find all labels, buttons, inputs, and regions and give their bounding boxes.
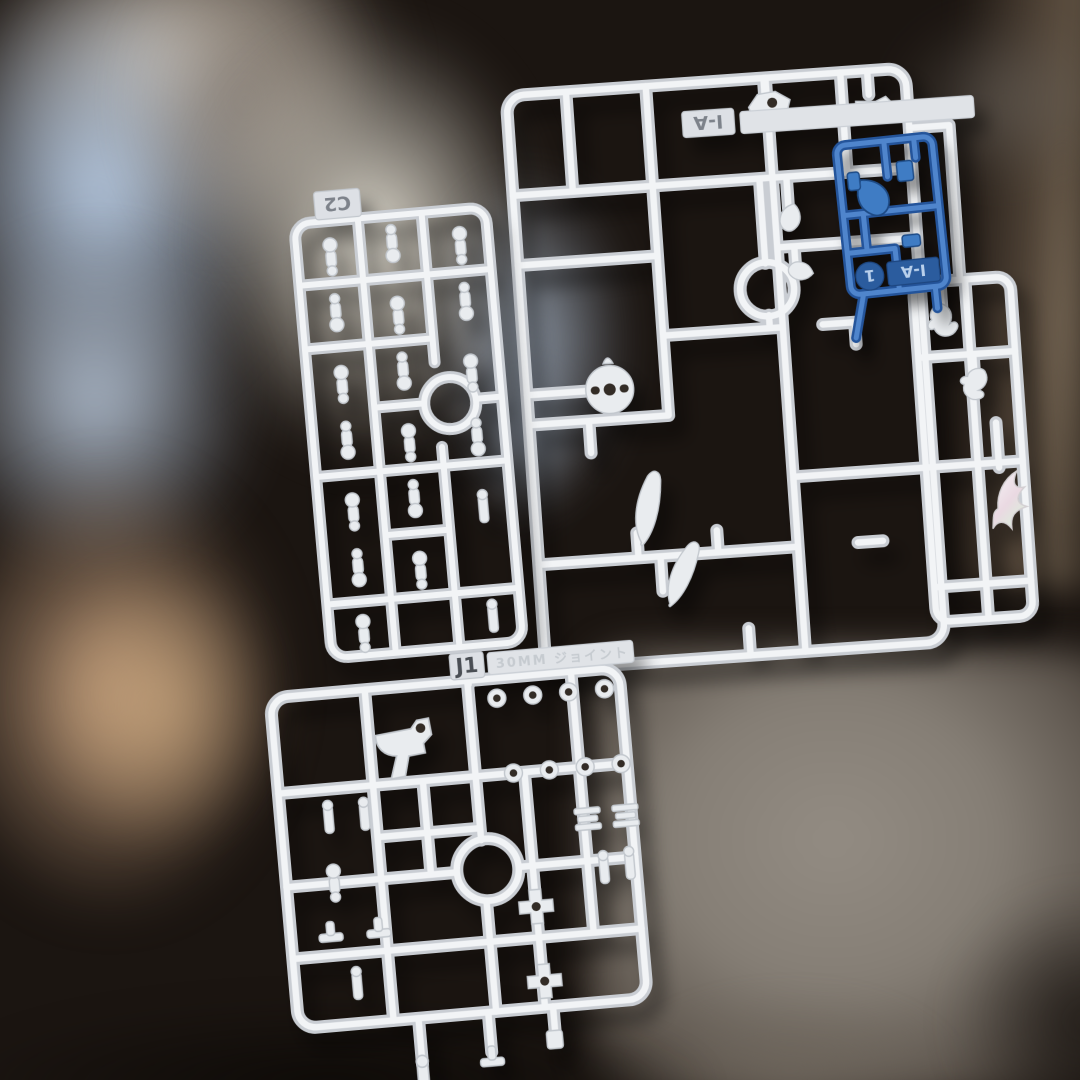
part-claw — [927, 303, 959, 338]
part-pod — [778, 202, 802, 233]
runner-ia-label: I-A — [692, 110, 723, 134]
runner-blue-label: I-A — [899, 260, 926, 282]
part-blue-block — [896, 160, 914, 182]
part-blue-block — [902, 234, 921, 248]
sprues-layer: I-A I-A 1 — [0, 0, 1080, 1080]
runner-blue-number: 1 — [863, 266, 876, 286]
runner-c2-tab: C2 — [313, 188, 361, 220]
runner-j1-label: J1 — [453, 653, 479, 679]
part-pistol — [374, 718, 439, 780]
runner-j1: J1 30MM ジョイント — [268, 638, 671, 1080]
photo-scene: I-A I-A 1 — [0, 0, 1080, 1080]
runner-ia-white: I-A — [506, 61, 1046, 670]
runner-c2-label: C2 — [323, 191, 352, 215]
runner-c2: C2 — [291, 177, 523, 658]
part-cross-joint — [518, 888, 555, 925]
part-cross-joint — [526, 963, 563, 1000]
part-claw — [955, 362, 996, 404]
part-blue-block — [847, 172, 861, 191]
part-round-cap — [584, 356, 636, 415]
